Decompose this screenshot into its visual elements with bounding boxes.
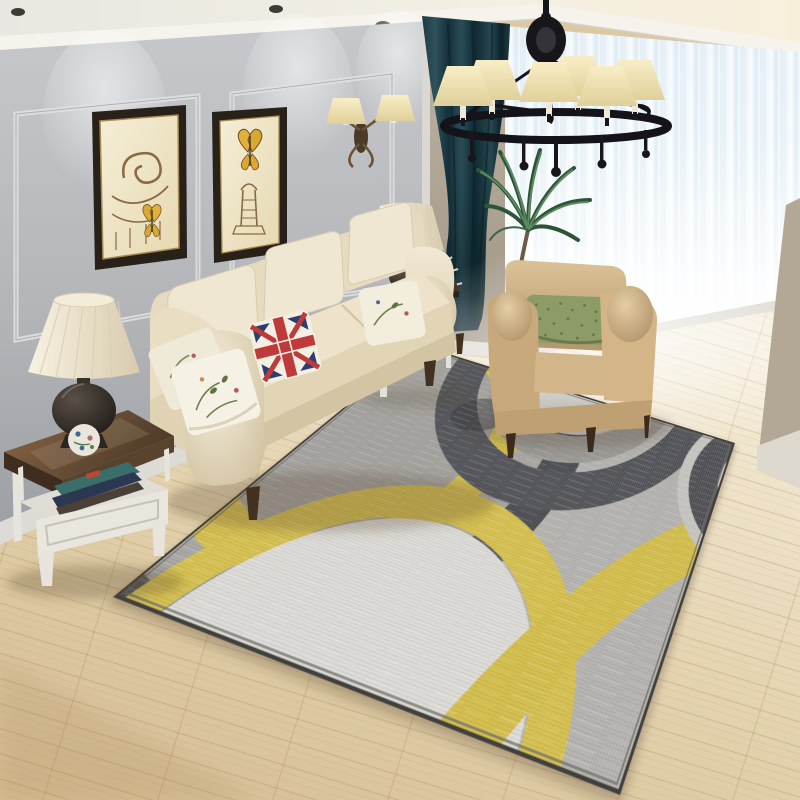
furniture	[0, 0, 800, 800]
living-room-photo	[0, 0, 800, 800]
floral-vase	[68, 424, 100, 456]
armchair	[488, 260, 657, 458]
side-table	[4, 293, 174, 586]
armchair-seat	[534, 352, 608, 396]
floral-pillow-right	[358, 279, 427, 347]
